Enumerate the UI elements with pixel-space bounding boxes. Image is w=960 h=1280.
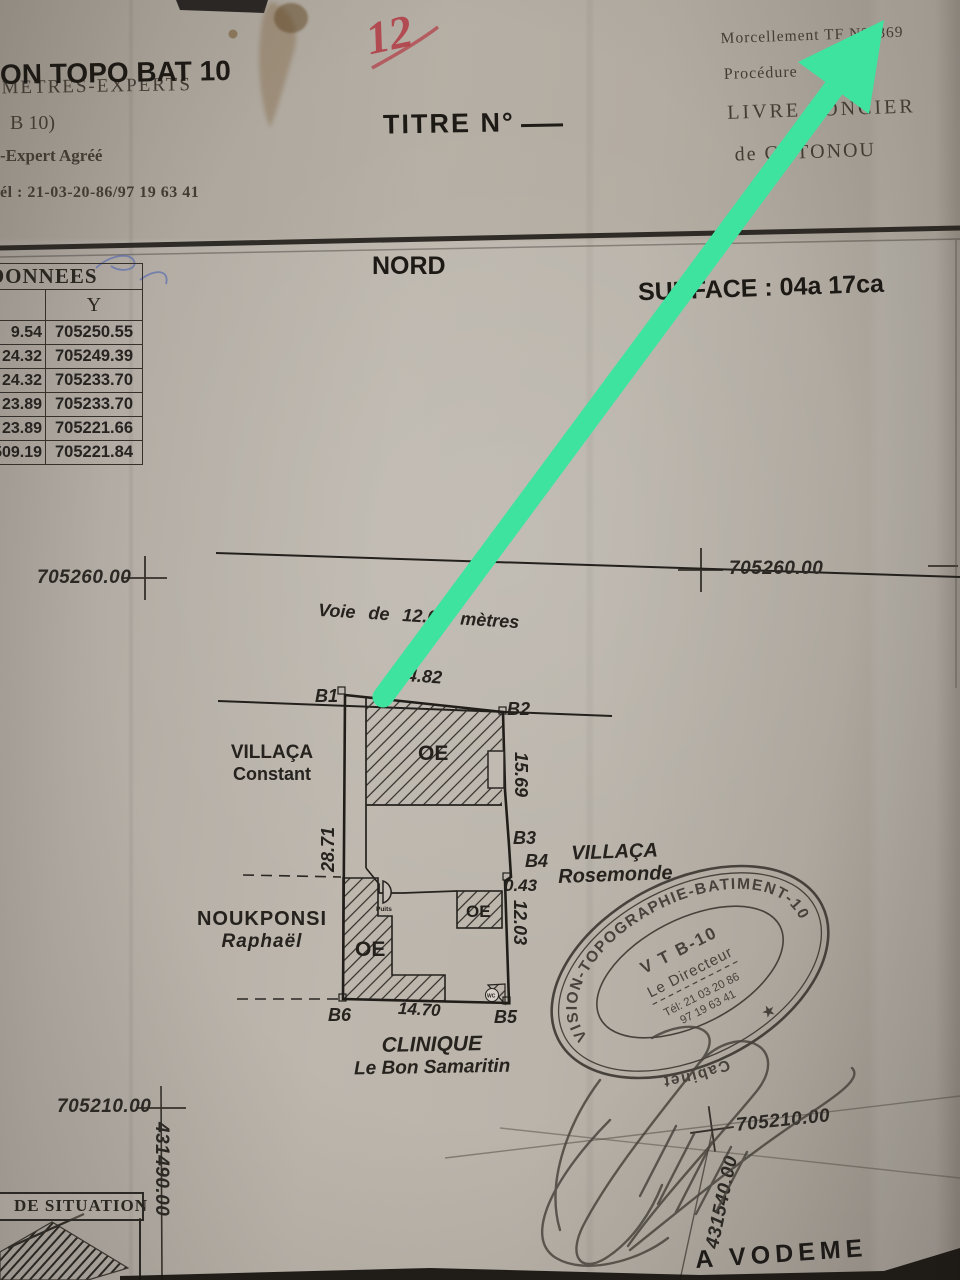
table-row: 23.89705221.66 bbox=[0, 417, 143, 441]
neighbor-south-detail: Le Bon Samaritin bbox=[347, 1056, 517, 1081]
neighbor-southwest-name: NOUKPONSI bbox=[187, 908, 337, 931]
situation-box: DE SITUATION bbox=[0, 1192, 144, 1221]
scanned-survey-plan: Puits WC OE OE OE METRES-EXPERTS ON TOPO… bbox=[0, 0, 960, 1280]
title-blank-line bbox=[521, 123, 563, 127]
cell-y: 705250.55 bbox=[46, 321, 143, 345]
cell-y: 705249.39 bbox=[46, 345, 143, 369]
point-b6: B6 bbox=[328, 1005, 351, 1026]
cell-y: 705221.84 bbox=[46, 441, 143, 465]
point-b1: B1 bbox=[315, 686, 338, 707]
stray-line-1 bbox=[445, 1096, 960, 1158]
north-label: NORD bbox=[372, 252, 446, 281]
table-row: 24.32705233.70 bbox=[0, 369, 143, 393]
cell-y: 705233.70 bbox=[46, 369, 143, 393]
dim-right-lower: 12.03 bbox=[509, 900, 530, 945]
divider-line-thin bbox=[0, 239, 960, 257]
neighbor-east-firstname: Rosemonde bbox=[550, 862, 681, 890]
table-row: 509.19705221.84 bbox=[0, 441, 143, 465]
cabinet-abbrev: B 10) bbox=[10, 112, 55, 135]
point-b5: B5 bbox=[494, 1007, 517, 1028]
road-north-line bbox=[216, 553, 960, 577]
cell-x: 23.89 bbox=[0, 417, 46, 441]
point-b2: B2 bbox=[507, 699, 530, 720]
wc-label: WC bbox=[487, 994, 496, 1000]
neighbor-south-name: CLINIQUE bbox=[347, 1032, 517, 1059]
point-b4: B4 bbox=[525, 851, 548, 872]
grid-label-705260-right: 705260.00 bbox=[729, 558, 823, 580]
table-row: 23.89705233.70 bbox=[0, 393, 143, 417]
neighbor-southwest-firstname: Raphaël bbox=[187, 931, 337, 953]
title-block: TITRE N° bbox=[383, 106, 563, 140]
col-x-header bbox=[0, 290, 46, 321]
neighbor-south: CLINIQUE Le Bon Samaritin bbox=[347, 1032, 518, 1081]
dim-left: 28.71 bbox=[318, 827, 339, 872]
title-label: TITRE N° bbox=[383, 107, 515, 139]
coordinates-table: DONNEES Y 9.54705250.55 24.32705249.39 2… bbox=[0, 263, 143, 465]
well-shape bbox=[383, 881, 391, 903]
gate-notch bbox=[488, 751, 504, 788]
cell-y: 705233.70 bbox=[46, 393, 143, 417]
grid-label-705260-left: 705260.00 bbox=[37, 567, 131, 589]
stain-dot bbox=[229, 30, 238, 39]
grid-label-431490: 431490.00 bbox=[150, 1122, 172, 1216]
oe-label-lower-left: OE bbox=[355, 938, 385, 961]
divider-line bbox=[0, 228, 960, 248]
oe-label-lower-right: OE bbox=[466, 902, 491, 921]
dim-offset: 0.43 bbox=[504, 876, 537, 896]
table-row: 24.32705249.39 bbox=[0, 345, 143, 369]
neighbor-west: VILLAÇA Constant bbox=[212, 742, 332, 785]
stain-core bbox=[274, 3, 308, 33]
cell-x: 23.89 bbox=[0, 393, 46, 417]
table-header: DONNEES bbox=[0, 264, 143, 290]
cabinet-title: ON TOPO BAT 10 bbox=[0, 55, 231, 91]
neighbor-east: VILLAÇA Rosemonde bbox=[549, 839, 681, 890]
situation-title: DE SITUATION bbox=[0, 1194, 142, 1216]
cell-x: 9.54 bbox=[0, 321, 46, 345]
table-row: 9.54705250.55 bbox=[0, 321, 143, 345]
dim-top: 14.82 bbox=[396, 664, 442, 688]
phone-line: él : 21-03-20-86/97 19 63 41 bbox=[0, 184, 199, 202]
point-b3: B3 bbox=[513, 828, 536, 849]
dim-bottom: 14.70 bbox=[398, 999, 442, 1021]
neighbor-southwest: NOUKPONSI Raphaël bbox=[187, 908, 337, 953]
col-y-header: Y bbox=[46, 290, 143, 321]
cell-x: 24.32 bbox=[0, 369, 46, 393]
photo-edge-mark bbox=[176, 0, 268, 13]
well-label: Puits bbox=[376, 906, 392, 913]
procedure-line: Procédure bbox=[724, 63, 798, 84]
cell-x: 24.32 bbox=[0, 345, 46, 369]
neighbor-west-firstname: Constant bbox=[212, 764, 332, 785]
situation-sketch-blocks bbox=[0, 1222, 128, 1280]
dim-right-upper: 15.69 bbox=[510, 752, 531, 797]
cell-y: 705221.66 bbox=[46, 417, 143, 441]
neighbor-west-name: VILLAÇA bbox=[212, 742, 332, 764]
cell-x: 509.19 bbox=[0, 441, 46, 465]
cotonou-line: de COTONOU bbox=[734, 139, 876, 167]
oe-label-upper: OE bbox=[418, 742, 448, 765]
grid-label-705210-left: 705210.00 bbox=[57, 1096, 151, 1118]
expert-line: -Expert Agréé bbox=[0, 146, 102, 166]
